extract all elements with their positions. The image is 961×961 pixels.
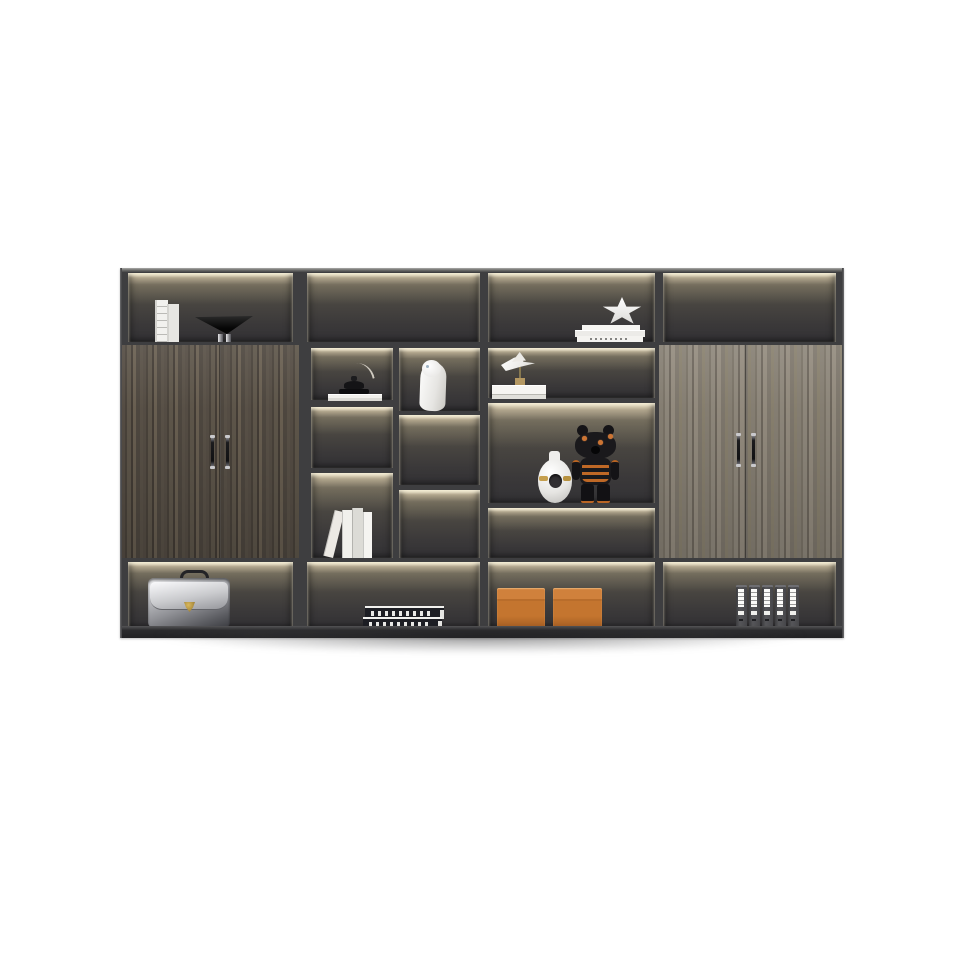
compartment-top-2 (307, 273, 480, 342)
leaning-book (363, 512, 372, 558)
door-handle (226, 437, 229, 467)
ring-binder (749, 585, 760, 628)
cone-foot (218, 334, 223, 342)
vase-hole (549, 474, 562, 488)
white-book (167, 304, 179, 342)
bear-star-detail (582, 436, 587, 441)
book-stack (582, 325, 640, 330)
storage-box (497, 588, 545, 628)
right-door-gap (745, 345, 747, 558)
compartment-top-1 (128, 273, 293, 342)
cone-foot (226, 334, 231, 342)
left-door-gap (219, 345, 221, 558)
leaning-book (342, 510, 352, 558)
ring-binder (788, 585, 799, 628)
lamp-ornament-dome (344, 381, 364, 389)
bird-stand (515, 378, 525, 385)
ring-binder (736, 585, 747, 628)
compartment-empty-center (488, 508, 655, 558)
bear-arm (611, 460, 619, 480)
storage-box (553, 588, 602, 628)
binder-row (736, 585, 802, 628)
compartment-empty-low (399, 490, 480, 558)
bear-leg (597, 484, 610, 503)
vase-gold-band (563, 476, 571, 481)
vase-gold-band (539, 476, 548, 481)
compartment-empty-left (311, 407, 393, 468)
bear-leg (581, 484, 594, 503)
door-handle (737, 435, 740, 465)
cabinet-top-edge (120, 268, 844, 272)
floor-shadow (106, 630, 854, 660)
ring-binder (775, 585, 786, 628)
compartment-top-4 (663, 273, 836, 342)
bear-star-detail (608, 434, 613, 439)
sculpture-detail (426, 365, 429, 368)
door-handle (211, 437, 214, 467)
book-stack (577, 336, 643, 342)
bear-arm (572, 460, 580, 480)
cabinet-right-edge (842, 268, 844, 638)
compartment-vase-bear (488, 403, 655, 503)
lamp-ornament-base (339, 389, 369, 394)
bookcase (120, 268, 844, 638)
white-book-flat (492, 385, 546, 399)
book-stack-small (328, 394, 382, 401)
ring-binder (762, 585, 773, 628)
bear-body (580, 458, 611, 485)
right-wood-doors (659, 345, 842, 558)
lamp-ornament-knob (351, 376, 357, 381)
bear-star-detail (598, 440, 603, 445)
door-handle (752, 435, 755, 465)
bird-post (519, 367, 521, 378)
sculpture-head (422, 360, 441, 377)
leaning-book (352, 508, 363, 558)
compartment-empty-mid (399, 415, 480, 485)
bear-muzzle (591, 446, 600, 454)
product-photo (0, 0, 961, 961)
